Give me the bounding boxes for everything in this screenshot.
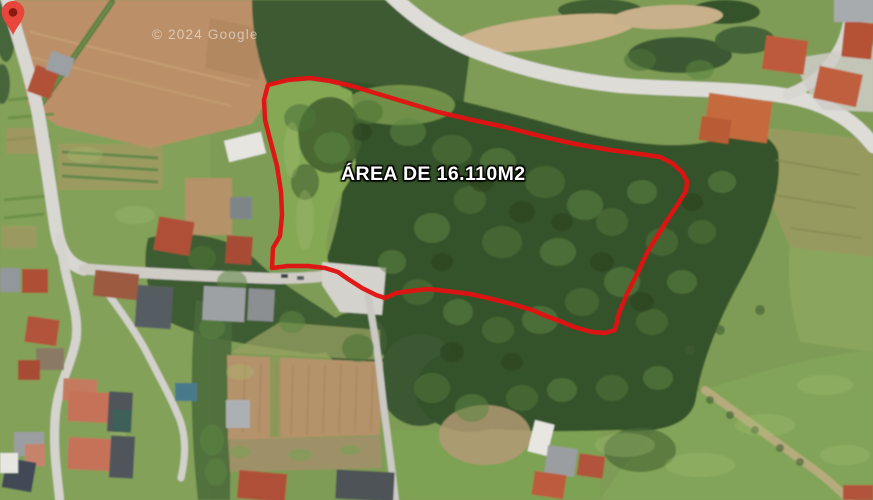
area-label: ÁREA DE 16.110M2 (341, 163, 526, 186)
pin-body-icon (2, 1, 25, 35)
location-marker-pin[interactable] (0, 0, 26, 37)
satellite-imagery (0, 0, 873, 500)
map-viewport[interactable]: ÁREA DE 16.110M2 © 2024 Google (0, 0, 873, 500)
google-watermark: © 2024 Google (152, 27, 259, 42)
pin-center-dot (9, 8, 18, 17)
